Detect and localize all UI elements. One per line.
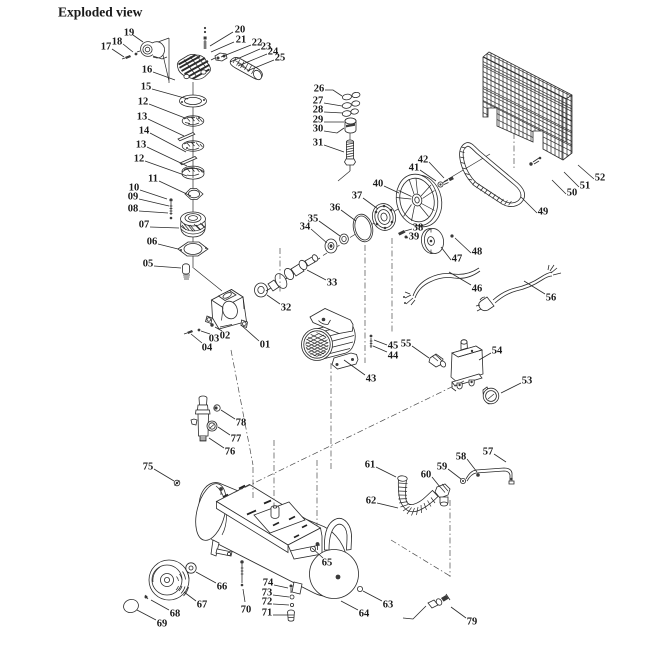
svg-text:25: 25 bbox=[275, 53, 286, 64]
svg-text:26: 26 bbox=[314, 84, 325, 95]
svg-text:17: 17 bbox=[101, 42, 112, 53]
svg-text:42: 42 bbox=[418, 155, 429, 166]
svg-text:02: 02 bbox=[220, 331, 231, 342]
svg-text:61: 61 bbox=[365, 460, 376, 471]
svg-text:69: 69 bbox=[157, 619, 168, 630]
svg-text:06: 06 bbox=[147, 237, 158, 248]
svg-text:72: 72 bbox=[262, 597, 273, 608]
svg-text:15: 15 bbox=[141, 82, 152, 93]
svg-text:19: 19 bbox=[124, 28, 135, 39]
svg-text:53: 53 bbox=[522, 376, 533, 387]
svg-text:65: 65 bbox=[322, 558, 333, 569]
svg-text:18: 18 bbox=[112, 37, 123, 48]
svg-text:47: 47 bbox=[452, 254, 463, 265]
svg-text:54: 54 bbox=[492, 346, 503, 357]
svg-text:13: 13 bbox=[136, 140, 147, 151]
svg-text:30: 30 bbox=[313, 124, 324, 135]
svg-text:05: 05 bbox=[143, 259, 154, 270]
svg-text:09: 09 bbox=[128, 192, 139, 203]
svg-text:46: 46 bbox=[472, 284, 483, 295]
svg-text:62: 62 bbox=[366, 496, 377, 507]
svg-text:21: 21 bbox=[236, 35, 247, 46]
svg-text:12: 12 bbox=[134, 154, 145, 165]
svg-text:66: 66 bbox=[217, 582, 228, 593]
svg-text:40: 40 bbox=[373, 179, 384, 190]
svg-text:77: 77 bbox=[231, 434, 242, 445]
svg-text:49: 49 bbox=[538, 207, 549, 218]
svg-text:79: 79 bbox=[467, 617, 478, 628]
svg-text:50: 50 bbox=[567, 188, 578, 199]
svg-text:08: 08 bbox=[128, 204, 139, 215]
svg-text:36: 36 bbox=[330, 203, 341, 214]
svg-text:37: 37 bbox=[352, 191, 363, 202]
svg-text:57: 57 bbox=[483, 447, 494, 458]
svg-text:68: 68 bbox=[170, 609, 181, 620]
svg-text:75: 75 bbox=[143, 462, 154, 473]
svg-text:48: 48 bbox=[472, 247, 483, 258]
svg-text:14: 14 bbox=[139, 126, 150, 137]
svg-text:44: 44 bbox=[388, 351, 399, 362]
svg-text:39: 39 bbox=[409, 232, 420, 243]
svg-text:70: 70 bbox=[241, 605, 252, 616]
svg-text:04: 04 bbox=[202, 343, 213, 354]
svg-text:51: 51 bbox=[580, 181, 591, 192]
svg-text:78: 78 bbox=[236, 418, 247, 429]
svg-text:16: 16 bbox=[142, 65, 153, 76]
svg-text:11: 11 bbox=[148, 174, 158, 185]
svg-text:45: 45 bbox=[388, 341, 399, 352]
svg-text:55: 55 bbox=[401, 339, 412, 350]
svg-text:13: 13 bbox=[137, 112, 148, 123]
svg-text:32: 32 bbox=[281, 303, 292, 314]
svg-text:07: 07 bbox=[139, 220, 150, 231]
svg-text:63: 63 bbox=[383, 600, 394, 611]
svg-text:58: 58 bbox=[456, 452, 467, 463]
svg-text:76: 76 bbox=[225, 447, 236, 458]
svg-text:59: 59 bbox=[437, 462, 448, 473]
svg-text:56: 56 bbox=[546, 293, 557, 304]
svg-text:12: 12 bbox=[138, 97, 149, 108]
svg-text:33: 33 bbox=[327, 278, 338, 289]
svg-text:01: 01 bbox=[260, 340, 271, 351]
svg-text:43: 43 bbox=[366, 374, 377, 385]
svg-text:31: 31 bbox=[313, 138, 324, 149]
svg-text:34: 34 bbox=[300, 222, 311, 233]
svg-text:67: 67 bbox=[197, 600, 208, 611]
svg-text:64: 64 bbox=[359, 609, 370, 620]
svg-text:71: 71 bbox=[262, 608, 273, 619]
svg-text:52: 52 bbox=[595, 173, 606, 184]
svg-text:60: 60 bbox=[421, 470, 432, 481]
svg-text:Exploded view: Exploded view bbox=[58, 5, 143, 20]
